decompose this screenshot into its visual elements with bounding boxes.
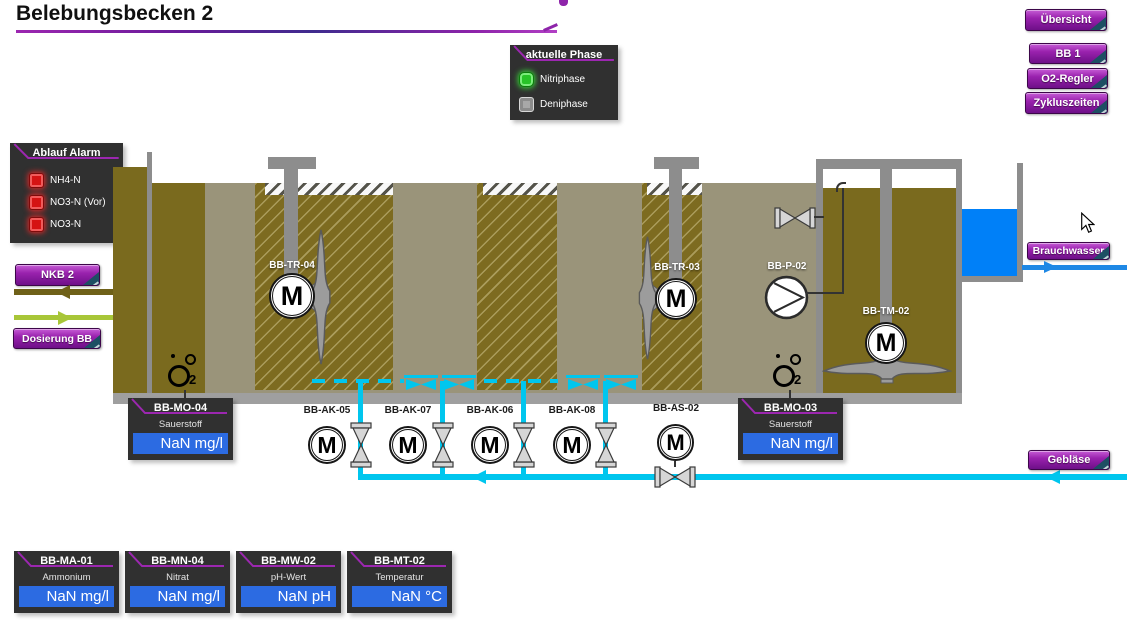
- valve-ak08-motor[interactable]: M: [553, 426, 591, 464]
- alarm-panel-title: Ablauf Alarm: [10, 147, 123, 159]
- pump-pipe-horizontal: [806, 292, 844, 294]
- mixer-tr03-motor[interactable]: M: [655, 278, 697, 320]
- bubble-dot: [776, 354, 780, 358]
- brauchwasser-arrow: [1044, 261, 1057, 273]
- nav-button-zykluszeiten[interactable]: Zykluszeiten: [1025, 92, 1108, 114]
- display-bb-mo-03: BB-MO-03 Sauerstoff NaN mg/l: [738, 398, 843, 460]
- pump-p02-label: BB-P-02: [760, 261, 814, 272]
- nitriphase-led: [519, 72, 534, 87]
- title-underline: [16, 30, 557, 33]
- alarm-label-no3n: NO3-N: [50, 219, 81, 230]
- nav-button-label: BB 1: [1055, 48, 1080, 60]
- nav-button-label: O2-Regler: [1041, 73, 1094, 85]
- oxygen-sensor-right-icon: 2: [771, 350, 807, 392]
- sensor-line-left: [184, 390, 186, 398]
- phase-panel-title: aktuelle Phase: [510, 49, 618, 61]
- diffuser-3: [566, 375, 600, 391]
- aeration-zone-2-cover: [483, 183, 557, 195]
- valve-ak05[interactable]: [349, 422, 373, 468]
- air-main-arrow-2: [1046, 470, 1060, 484]
- o2-subscript: 2: [189, 372, 196, 387]
- valve-ak08[interactable]: [594, 422, 618, 468]
- motor-letter: M: [666, 285, 687, 314]
- valve-ak06[interactable]: [512, 422, 536, 468]
- nkb2-button-label: NKB 2: [41, 269, 74, 281]
- bubble-dot: [171, 354, 175, 358]
- alarm-led-no3n: [29, 217, 44, 232]
- mixer-tr04-motor[interactable]: M: [269, 273, 315, 319]
- hmi-screen: Belebungsbecken 2 Übersicht BB 1 O2-Regl…: [0, 0, 1127, 620]
- motor-letter: M: [876, 329, 897, 358]
- display-value[interactable]: NaN °C: [352, 586, 447, 607]
- nav-button-label: Übersicht: [1041, 14, 1092, 26]
- clearwater-bottom: [956, 276, 1023, 282]
- diffuser-2: [442, 375, 476, 391]
- display-value[interactable]: NaN mg/l: [19, 586, 114, 607]
- brauchwasser-pipe: [1022, 265, 1127, 270]
- dosierung-bb-button[interactable]: Dosierung BB: [13, 328, 101, 349]
- display-bb-mn-04: BB-MN-04 Nitrat NaN mg/l: [125, 551, 230, 613]
- pump-pipe-vertical: [842, 188, 844, 294]
- brauchwasser-button-label: Brauchwasser: [1033, 245, 1105, 257]
- valve-ak07-label: BB-AK-07: [378, 405, 438, 416]
- mixer-tm02-motor[interactable]: M: [865, 322, 907, 364]
- motor-letter: M: [562, 432, 581, 459]
- geblaese-button[interactable]: Gebläse: [1028, 450, 1110, 470]
- display-label: Ammonium: [14, 572, 119, 583]
- display-label: Nitrat: [125, 572, 230, 583]
- alarm-led-no3n-vor: [29, 195, 44, 210]
- motor-letter: M: [398, 432, 417, 459]
- mouse-cursor: [1080, 212, 1095, 234]
- air-main-arrow-1: [472, 470, 486, 484]
- nkb2-button[interactable]: NKB 2: [15, 264, 100, 286]
- valve-ak08-label: BB-AK-08: [542, 405, 602, 416]
- nitriphase-label: Nitriphase: [540, 74, 585, 85]
- sensor-line-right: [789, 390, 791, 398]
- valve-ak07-motor[interactable]: M: [389, 426, 427, 464]
- display-label: Temperatur: [347, 572, 452, 583]
- chamber-valve-line: [814, 216, 824, 218]
- display-id: BB-MW-02: [236, 555, 341, 567]
- deniphase-led: [519, 97, 534, 112]
- display-value[interactable]: NaN mg/l: [133, 433, 228, 454]
- oxygen-sensor-left-icon: 2: [166, 350, 202, 392]
- valve-as02-label: BB-AS-02: [646, 403, 706, 414]
- mixer-tm02-label: BB-TM-02: [856, 306, 916, 317]
- display-bb-mo-04: BB-MO-04 Sauerstoff NaN mg/l: [128, 398, 233, 460]
- alarm-panel: Ablauf Alarm NH4-N NO3-N (Vor) NO3-N: [10, 143, 123, 243]
- diffuser-4: [604, 375, 638, 391]
- motor-letter: M: [317, 432, 336, 459]
- valve-ak07[interactable]: [431, 422, 455, 468]
- page-title: Belebungsbecken 2: [16, 2, 213, 26]
- display-value[interactable]: NaN mg/l: [743, 433, 838, 454]
- display-bb-mt-02: BB-MT-02 Temperatur NaN °C: [347, 551, 452, 613]
- display-bb-mw-02: BB-MW-02 pH-Wert NaN pH: [236, 551, 341, 613]
- bubble-icon: [185, 354, 196, 365]
- pump-p02[interactable]: [764, 275, 809, 320]
- dosing-arrow: [58, 311, 72, 325]
- mixer-tr04-label: BB-TR-04: [262, 260, 322, 271]
- display-label: pH-Wert: [236, 572, 341, 583]
- valve-as02[interactable]: [654, 464, 696, 490]
- valve-ak05-motor[interactable]: M: [308, 426, 346, 464]
- diffuser-1: [404, 375, 438, 391]
- chamber-valve[interactable]: [774, 205, 816, 231]
- phase-panel: aktuelle Phase Nitriphase Deniphase: [510, 45, 618, 120]
- nav-button-o2-regler[interactable]: O2-Regler: [1027, 68, 1108, 89]
- o2-subscript: 2: [794, 372, 801, 387]
- valve-ak06-motor[interactable]: M: [471, 426, 509, 464]
- o2-ring-icon: [773, 365, 795, 387]
- display-id: BB-MN-04: [125, 555, 230, 567]
- alarm-label-nh4n: NH4-N: [50, 175, 81, 186]
- motor-letter: M: [666, 430, 684, 456]
- mixer-tr03-label: BB-TR-03: [648, 262, 706, 273]
- display-value[interactable]: NaN pH: [241, 586, 336, 607]
- display-id: BB-MA-01: [14, 555, 119, 567]
- display-bb-ma-01: BB-MA-01 Ammonium NaN mg/l: [14, 551, 119, 613]
- alarm-label-no3n-vor: NO3-N (Vor): [50, 197, 106, 208]
- valve-as02-motor[interactable]: M: [657, 424, 694, 461]
- geblaese-button-label: Gebläse: [1048, 454, 1091, 466]
- display-id: BB-MO-04: [128, 402, 233, 414]
- valve-ak05-label: BB-AK-05: [297, 405, 357, 416]
- display-value[interactable]: NaN mg/l: [130, 586, 225, 607]
- dosierung-bb-button-label: Dosierung BB: [22, 333, 92, 345]
- valve-ak06-label: BB-AK-06: [460, 405, 520, 416]
- o2-ring-icon: [168, 365, 190, 387]
- clear-water: [962, 209, 1017, 276]
- diffuser-line-2: [484, 379, 558, 383]
- display-label: Sauerstoff: [738, 419, 843, 430]
- nav-button-bb1[interactable]: BB 1: [1029, 43, 1107, 64]
- display-id: BB-MT-02: [347, 555, 452, 567]
- pump-pipe-hook: [836, 182, 846, 192]
- brauchwasser-button[interactable]: Brauchwasser: [1027, 242, 1110, 260]
- bubble-icon: [790, 354, 801, 365]
- display-label: Sauerstoff: [128, 419, 233, 430]
- aeration-zone-2: [477, 183, 557, 390]
- return-sludge-arrow: [56, 285, 70, 299]
- nav-button-label: Zykluszeiten: [1033, 97, 1099, 109]
- diffuser-line-1: [312, 379, 404, 383]
- alarm-led-nh4n: [29, 173, 44, 188]
- nav-button-uebersicht[interactable]: Übersicht: [1025, 9, 1107, 31]
- deniphase-label: Deniphase: [540, 99, 588, 110]
- inlet-channel: [113, 167, 147, 393]
- top-edge-marker: [559, 0, 568, 6]
- motor-letter: M: [480, 432, 499, 459]
- display-id: BB-MO-03: [738, 402, 843, 414]
- motor-letter: M: [281, 281, 304, 312]
